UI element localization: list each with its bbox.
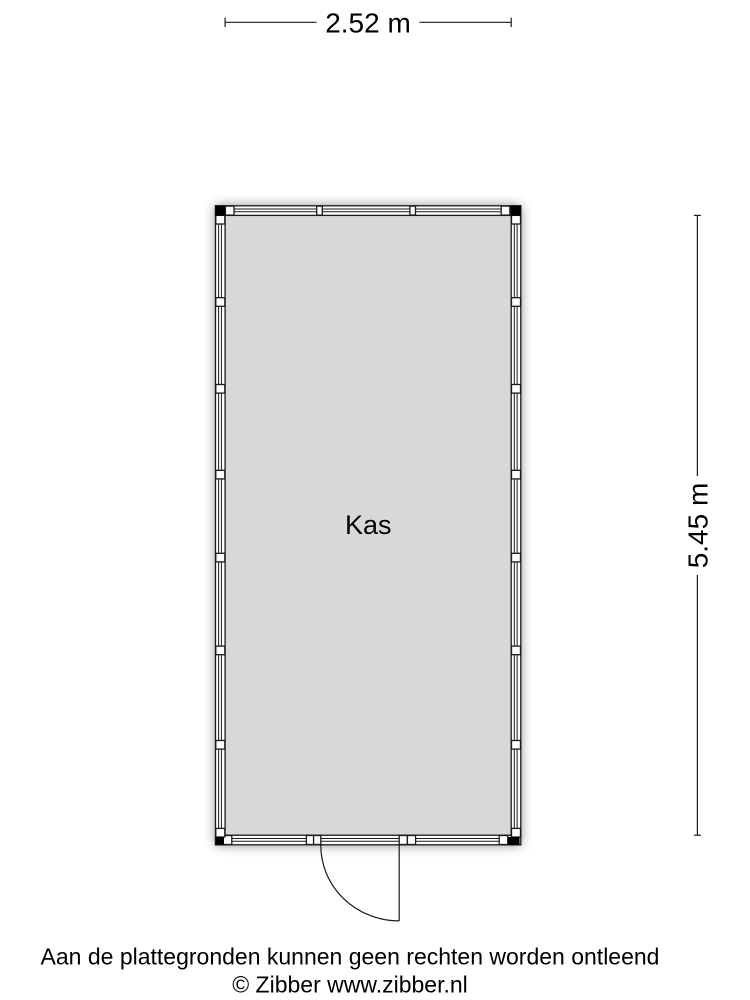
svg-text:2.52 m: 2.52 m xyxy=(325,7,411,38)
svg-text:Kas: Kas xyxy=(345,510,392,540)
svg-text:Aan de plattegronden kunnen ge: Aan de plattegronden kunnen geen rechten… xyxy=(41,943,660,969)
svg-text:© Zibber www.zibber.nl: © Zibber www.zibber.nl xyxy=(232,971,468,997)
svg-text:5.45 m: 5.45 m xyxy=(683,483,714,569)
